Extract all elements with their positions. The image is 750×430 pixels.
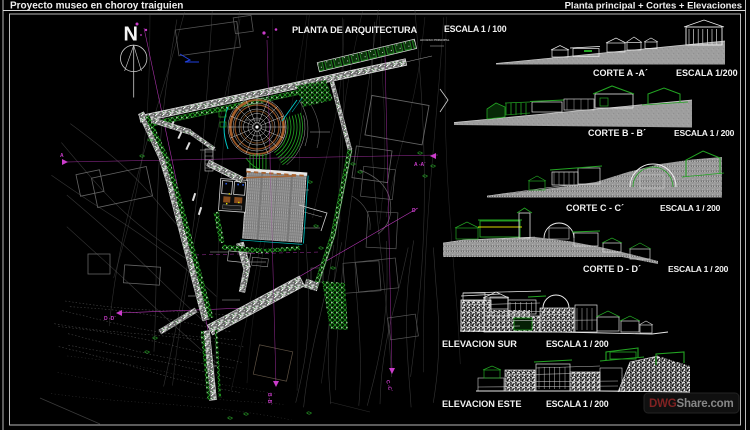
- svg-text:ELEVACION SUR: ELEVACION SUR: [442, 339, 517, 349]
- svg-text:B -B´: B -B´: [266, 393, 272, 405]
- svg-text:CORTE B - B´: CORTE B - B´: [588, 128, 646, 138]
- svg-text:ESCALA 1/200: ESCALA 1/200: [676, 68, 738, 78]
- svg-text:N: N: [124, 24, 138, 46]
- svg-text:ACCESO PRINCIPAL: ACCESO PRINCIPAL: [420, 38, 450, 42]
- svg-text:D -D´: D -D´: [104, 316, 116, 322]
- svg-text:ESCALA 1 / 200: ESCALA 1 / 200: [674, 128, 735, 138]
- svg-text:Proyecto museo en choroy traig: Proyecto museo en choroy traiguien: [10, 1, 183, 12]
- svg-text:ESCALA 1 / 200: ESCALA 1 / 200: [668, 264, 729, 274]
- svg-text:Planta principal + Cortes + El: Planta principal + Cortes + Elevaciones: [565, 1, 742, 12]
- svg-text:CORTE A -A´: CORTE A -A´: [593, 68, 648, 78]
- svg-text:CORTE C - C´: CORTE C - C´: [566, 203, 624, 213]
- svg-text:PLANTA DE ARQUITECTURA: PLANTA DE ARQUITECTURA: [292, 25, 418, 35]
- svg-text:ELEVACION ESTE: ELEVACION ESTE: [442, 399, 521, 409]
- svg-text:A -A´: A -A´: [414, 162, 426, 168]
- svg-text:CORTE D - D´: CORTE D - D´: [583, 264, 641, 274]
- svg-text:ESCALA 1 / 200: ESCALA 1 / 200: [546, 339, 609, 349]
- svg-text:DWGShare.com: DWGShare.com: [649, 398, 734, 410]
- svg-text:D´: D´: [412, 208, 418, 214]
- svg-text:ESCALA 1 / 200: ESCALA 1 / 200: [546, 399, 609, 409]
- svg-text:ESCALA 1 / 200: ESCALA 1 / 200: [660, 203, 721, 213]
- svg-text:A: A: [60, 153, 64, 159]
- svg-text:ESCALA 1 / 100: ESCALA 1 / 100: [444, 24, 507, 34]
